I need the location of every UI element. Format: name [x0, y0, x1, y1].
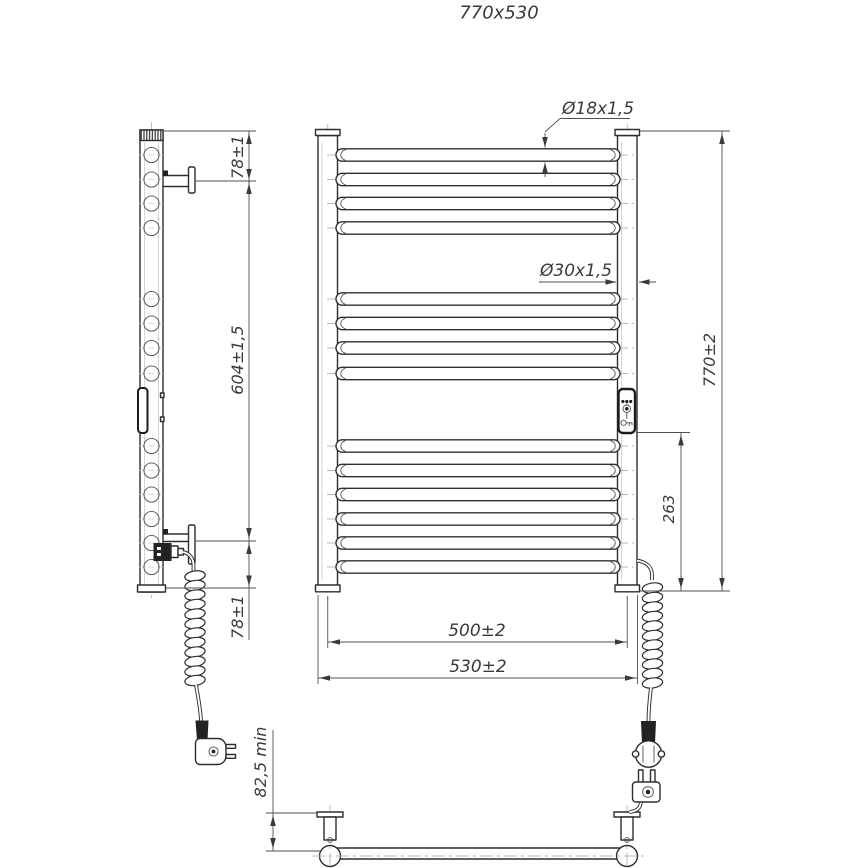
left-post-top-cap — [316, 130, 341, 136]
dim-text-overall-width: 530±2 — [449, 657, 507, 677]
bottom-right-bracket — [614, 812, 640, 842]
drawing-title: 770x530 — [459, 3, 538, 24]
dimension-post-tube: Ø30x1,5 — [539, 261, 656, 282]
dimension-cable-outlet-offset: 263 — [636, 433, 690, 592]
plug-pin — [651, 770, 656, 783]
side-power-plug — [196, 721, 236, 765]
drawing-sheet: 770x530 — [0, 0, 868, 868]
bottom-view — [312, 770, 660, 868]
dimension-bottom-bracket-offset: 78±1 — [166, 541, 256, 640]
side-coiled-cable — [183, 552, 206, 721]
dim-text-mounting-width: 500±2 — [448, 621, 506, 641]
side-post — [140, 130, 163, 592]
dim-text-cable-outlet: 263 — [660, 495, 678, 524]
right-post-top-cap — [615, 130, 640, 136]
side-view — [138, 122, 236, 765]
side-post-base — [138, 585, 166, 592]
plug-pin — [639, 770, 644, 783]
bottom-left-bracket — [317, 812, 343, 842]
side-control-panel — [138, 388, 148, 433]
dim-text-wall-distance: 82,5 min — [251, 727, 270, 798]
front-control-panel — [619, 389, 636, 433]
side-post-top-cap — [140, 130, 163, 141]
dim-text-mounting-span: 604±1,5 — [228, 325, 247, 394]
dim-text-bar-tube: Ø18x1,5 — [561, 99, 634, 119]
indicator-led-icon — [630, 400, 632, 402]
front-left-post — [318, 136, 338, 586]
dimension-wall-distance: 82,5 min — [251, 727, 320, 851]
wall-bracket-top — [163, 167, 195, 193]
right-post-base — [615, 585, 640, 592]
indicator-led-icon — [626, 400, 628, 402]
left-post-base — [316, 585, 341, 592]
technical-drawing: 770x530 — [0, 0, 868, 868]
towel-bars — [327, 149, 634, 573]
bottom-plug-assembly — [630, 770, 661, 812]
dimension-overall-height: 770±2 — [640, 131, 730, 591]
indicator-led-icon — [622, 400, 624, 402]
dim-text-post-tube: Ø30x1,5 — [539, 261, 612, 281]
dimension-mounting-width: 500±2 — [328, 596, 628, 648]
dim-text-bottom-bracket: 78±1 — [228, 595, 247, 639]
front-power-plug — [632, 722, 664, 768]
front-coiled-cable — [637, 561, 663, 722]
dim-text-overall-height: 770±2 — [700, 333, 719, 387]
dimension-mounting-span: 604±1,5 — [228, 181, 249, 541]
side-power-unit — [154, 544, 184, 561]
dim-text-top-bracket: 78±1 — [228, 135, 247, 179]
